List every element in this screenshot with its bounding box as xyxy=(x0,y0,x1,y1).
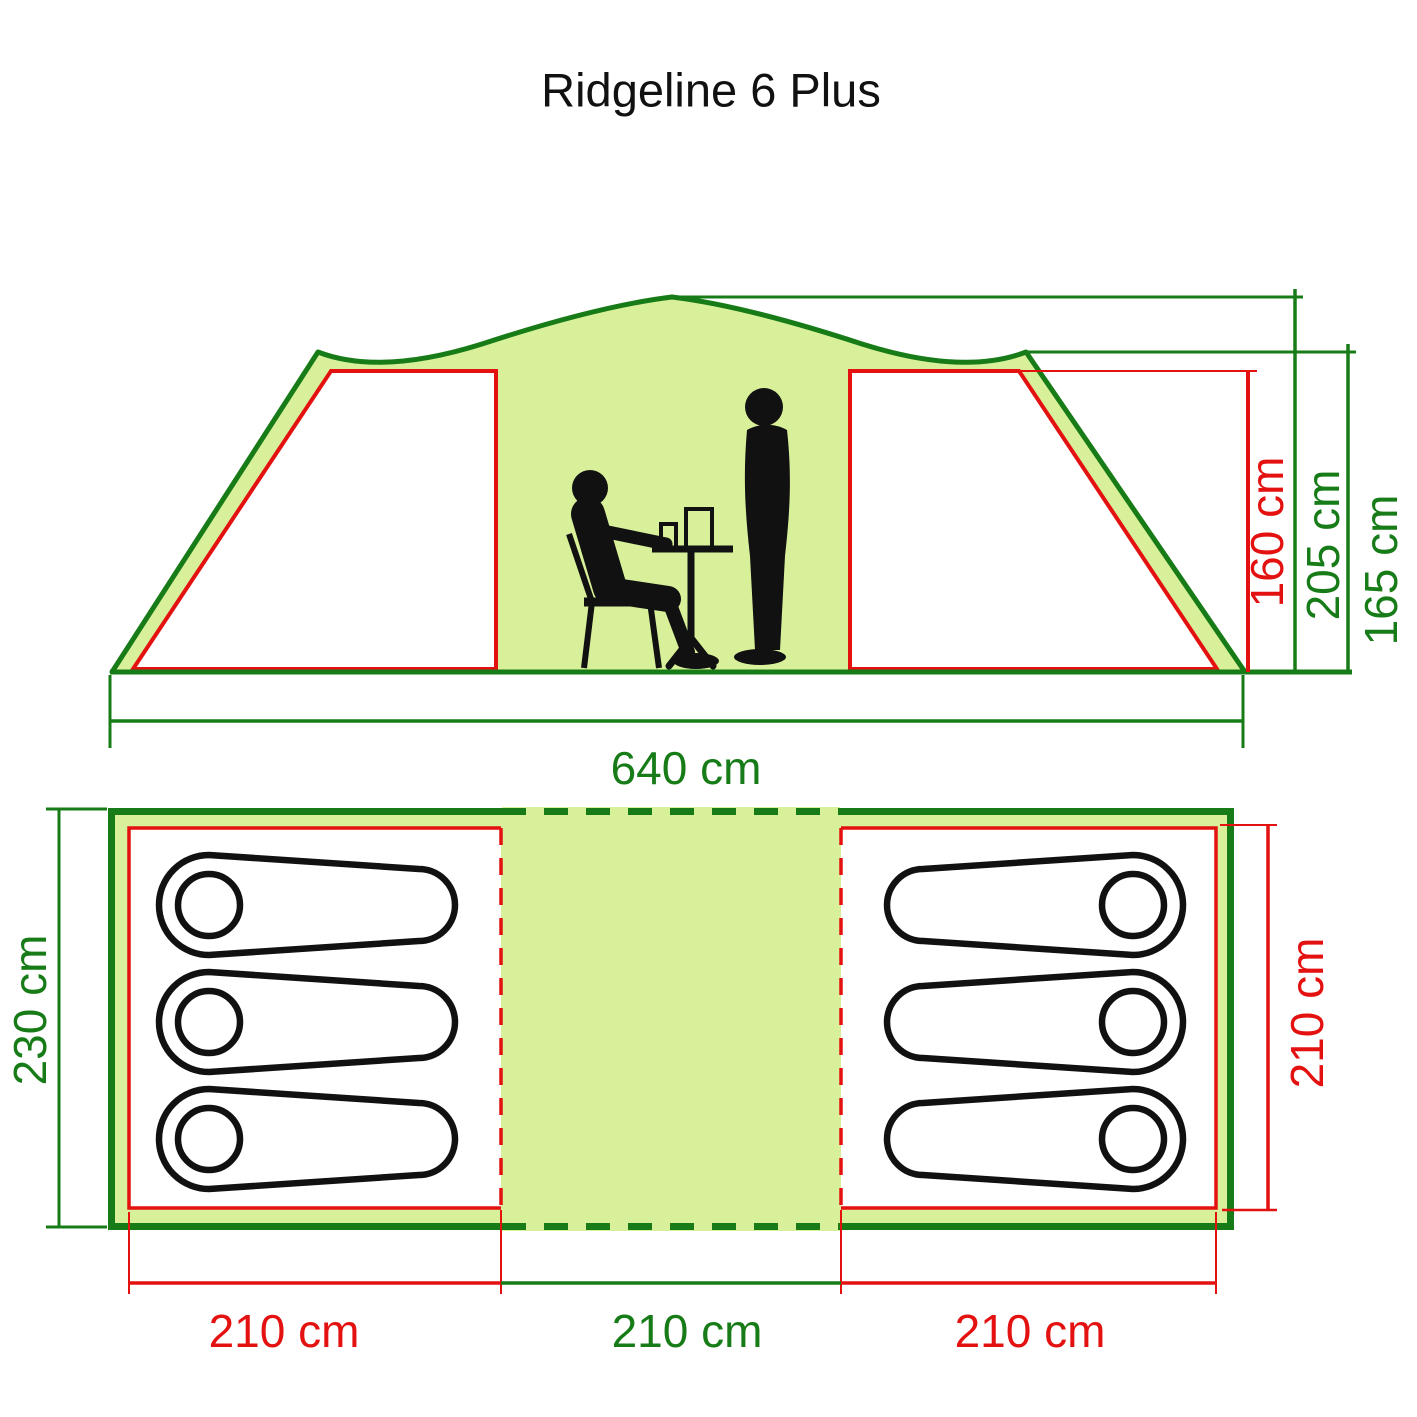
side-elevation: 160 cm 205 cm 165 cm 640 cm xyxy=(110,289,1407,794)
width-dimension: 640 cm xyxy=(110,675,1243,794)
section-width-dimensions: 210 cm 210 cm 210 cm xyxy=(129,1210,1216,1357)
sleeping-bag-icon xyxy=(887,972,1183,1072)
left-cabin-width-label: 210 cm xyxy=(209,1305,360,1357)
left-cabin-plan xyxy=(129,828,501,1208)
living-area-width-label: 210 cm xyxy=(612,1305,763,1357)
inner-height-label: 160 cm xyxy=(1241,457,1293,608)
sleeping-bag-icon xyxy=(887,1089,1183,1189)
diagram-canvas: Ridgeline 6 Plus xyxy=(0,0,1417,1417)
right-inner-cabin xyxy=(850,371,1217,669)
total-width-label: 640 cm xyxy=(611,742,762,794)
peak-height-label: 205 cm xyxy=(1297,470,1349,621)
tent-dimension-diagram: Ridgeline 6 Plus xyxy=(0,0,1417,1417)
page-title: Ridgeline 6 Plus xyxy=(541,64,881,117)
sleeping-bag-icon xyxy=(159,972,455,1072)
floor-plan: 230 cm 210 cm 210 cm 210 cm 210 cm xyxy=(4,808,1333,1357)
side-height-label: 165 cm xyxy=(1355,495,1407,646)
sleeping-bag-icon xyxy=(159,855,455,955)
right-cabin-width-label: 210 cm xyxy=(955,1305,1106,1357)
cabin-depth-dimension: 210 cm xyxy=(1220,825,1333,1210)
depth-dimension: 230 cm xyxy=(4,808,107,1228)
left-inner-cabin xyxy=(133,371,496,669)
sleeping-bag-icon xyxy=(887,855,1183,955)
total-depth-label: 230 cm xyxy=(4,935,56,1086)
right-cabin-plan xyxy=(841,828,1216,1208)
sleeping-bag-icon xyxy=(159,1089,455,1189)
cabin-depth-label: 210 cm xyxy=(1281,938,1333,1089)
